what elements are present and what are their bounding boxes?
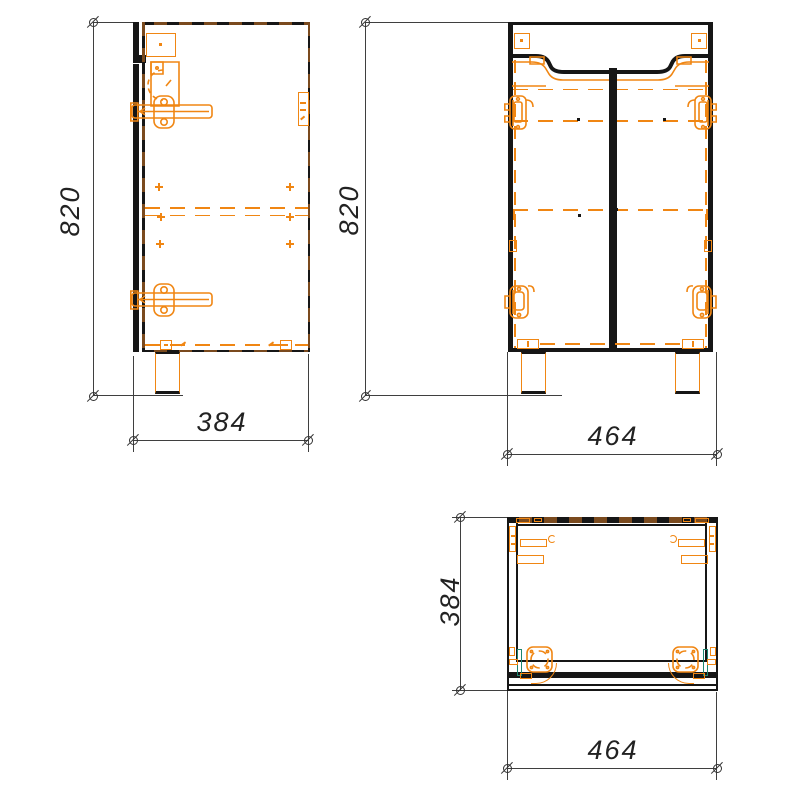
side-height-dim-line	[93, 22, 94, 396]
corner-fitting-icon	[707, 659, 716, 665]
front-bottom-dashed-line	[540, 343, 680, 345]
shelf-clip-icon	[704, 240, 712, 252]
dim-marker	[304, 436, 313, 445]
cross-hinge-icon	[130, 95, 214, 129]
dowel-plate-icon	[517, 555, 544, 564]
side-shelf-dashed-line	[145, 215, 308, 216]
fastener-cross	[286, 213, 294, 221]
cabinet-leg	[155, 352, 180, 394]
dim-marker	[456, 513, 465, 522]
dim-marker	[129, 436, 138, 445]
hinge-icon	[687, 94, 717, 132]
dim-marker	[361, 392, 370, 401]
front-height-dim-line	[365, 22, 366, 396]
cross-hinge-icon	[130, 283, 214, 317]
fastener-cross	[155, 183, 163, 191]
front-left-hardware	[504, 22, 611, 396]
side-depth-dim-line	[133, 440, 308, 441]
dim-marker	[503, 450, 512, 459]
hook-icon	[669, 535, 677, 543]
corner-fitting-icon	[509, 659, 518, 665]
hook-icon	[548, 535, 556, 543]
band-fitting-icon	[520, 673, 532, 679]
side-door-edge	[133, 22, 139, 56]
side-shelf-dashed-line	[145, 207, 308, 209]
fastener-cross	[286, 240, 294, 248]
cabinet-leg	[675, 352, 700, 394]
dim-marker	[503, 764, 512, 773]
dowel-plate-icon	[681, 555, 708, 564]
dowel-bar-icon	[520, 539, 547, 547]
front-width-dim-line	[507, 454, 717, 455]
back-connector-icon	[298, 92, 309, 126]
cabinet-leg	[521, 352, 546, 394]
top-width-dim-line	[507, 768, 717, 769]
corner-fitting-icon	[509, 647, 515, 656]
dim-marker	[713, 764, 722, 773]
cam-lock-icon	[160, 340, 172, 350]
front-height-ext-top	[365, 22, 508, 23]
corner-fitting-icon	[514, 33, 530, 49]
door-swing-arc	[668, 663, 694, 684]
hinge-icon	[504, 282, 534, 322]
side-height-ext-bottom	[93, 395, 183, 396]
top-width-label: 464	[573, 735, 653, 765]
side-depth-label: 384	[182, 407, 262, 437]
band-fitting-icon	[534, 518, 542, 522]
corner-fitting-icon	[710, 647, 716, 656]
top-left-hardware	[507, 517, 613, 690]
fastener-cross	[156, 240, 164, 248]
corner-fitting-icon	[691, 33, 707, 49]
cam-lock-icon	[517, 339, 539, 349]
hinge-icon	[504, 94, 534, 132]
dim-marker	[89, 392, 98, 401]
top-right-hardware	[612, 517, 718, 690]
dim-marker	[89, 18, 98, 27]
band-fitting-icon	[683, 518, 691, 522]
shelf-tick	[706, 209, 708, 220]
band-fitting-icon	[693, 673, 705, 679]
shelf-clip-icon	[509, 240, 517, 252]
side-height-label: 820	[55, 171, 85, 251]
shelf-tick	[513, 209, 515, 220]
dim-marker	[713, 450, 722, 459]
band-fitting-icon	[516, 518, 530, 523]
dim-marker	[456, 686, 465, 695]
bracket-dot	[159, 43, 162, 46]
door-swing-arc	[531, 663, 557, 684]
cam-lock-icon	[280, 340, 292, 350]
side-panel-back-edge	[308, 22, 311, 352]
fastener-cross	[286, 183, 294, 191]
wall-fitting-icon	[509, 526, 516, 552]
front-height-label: 820	[334, 170, 364, 250]
dim-marker	[361, 18, 370, 27]
cam-lock-icon	[682, 339, 704, 349]
side-panel-top-edge	[142, 22, 310, 25]
front-width-label: 464	[573, 421, 653, 451]
band-fitting-icon	[695, 518, 709, 523]
top-depth-label: 384	[435, 561, 465, 641]
dowel-bar-icon	[678, 539, 705, 547]
front-right-hardware	[610, 22, 717, 396]
technical-drawing-canvas: 820 384	[0, 0, 800, 800]
wall-fitting-icon	[709, 526, 716, 552]
fastener-cross	[157, 213, 165, 221]
hinge-icon	[687, 282, 717, 322]
side-height-ext-top	[93, 22, 137, 23]
